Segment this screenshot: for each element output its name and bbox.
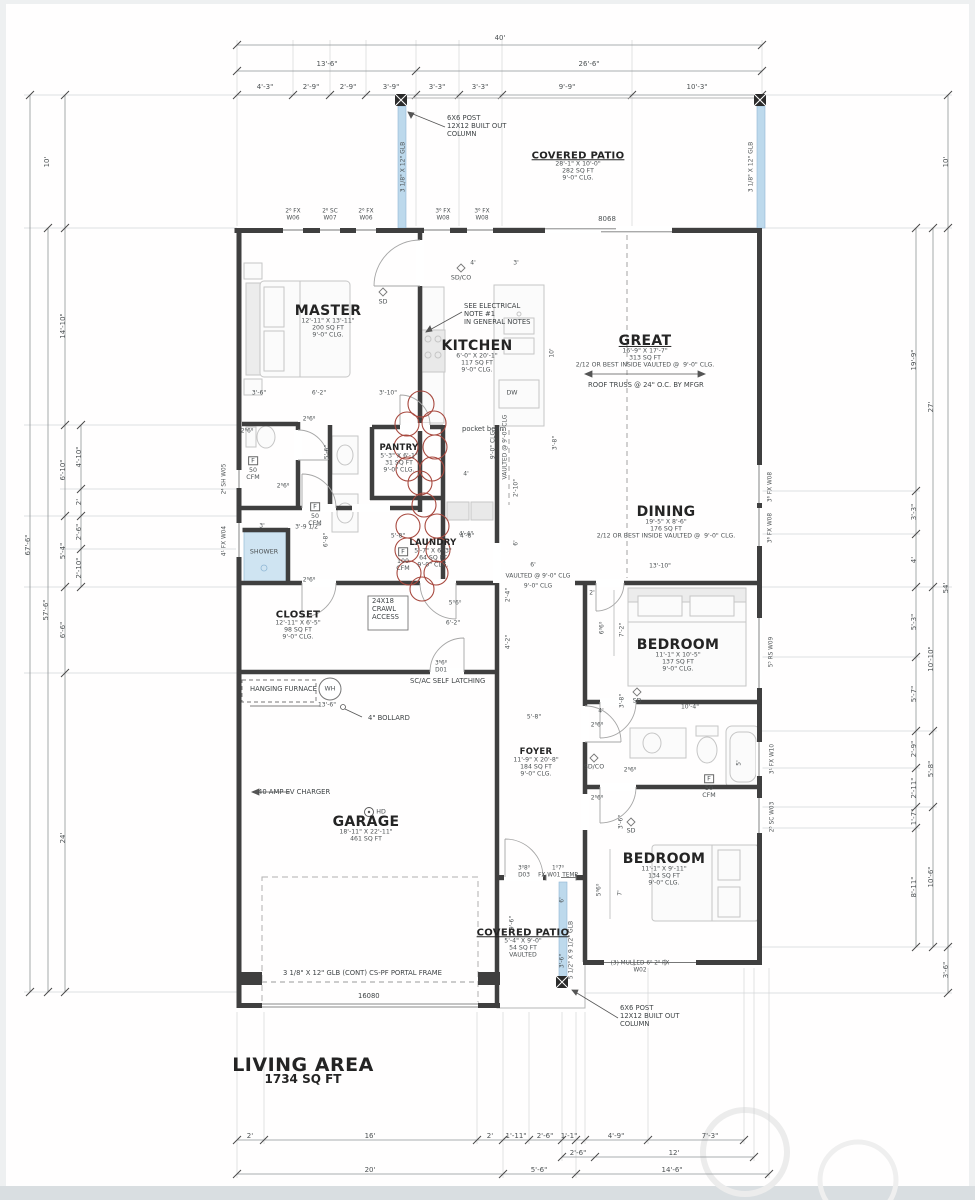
small-dims-27: VAULTED @ 9'-0" CLG: [506, 574, 571, 581]
dims-left-1: 57'-6": [42, 599, 50, 620]
markers-13: 100 CFM: [396, 558, 409, 572]
dims-top-11: 8068: [598, 215, 616, 223]
window-labels-v-2: 3⁶ FX W08: [768, 472, 775, 502]
dims-left-5: 5'-4": [59, 543, 67, 560]
small-dims-19: 2⁶6⁸: [303, 417, 315, 424]
room-sub-0-1: 200 SQ FT: [312, 325, 344, 332]
markers-10: F: [310, 502, 320, 511]
small-dims-26: 5⁰6⁰: [449, 601, 461, 608]
dims-top-7: 3'-3": [429, 83, 446, 91]
small-dims-4: 3': [513, 261, 518, 268]
small-dims-v-11: 2'-4": [506, 588, 513, 602]
room-sub-5-0: 5'-7" X 6'-3": [414, 547, 451, 554]
small-dims-v-3: 3'-8": [553, 436, 560, 450]
room-sub-6-0: 12'-11" X 6'-5": [275, 619, 320, 626]
window-labels-v-5: 3¹ FX W10: [770, 744, 777, 774]
room-sub-5-2: 9'-0" CLG.: [417, 562, 448, 569]
dims-left-2: 10': [43, 157, 51, 168]
room-sub-11-2: 9'-0" CLG.: [562, 175, 593, 182]
markers-1: SD/CO: [451, 274, 471, 281]
room-sub-9-1: 137 SQ FT: [662, 659, 694, 666]
dims-top-4: 2'-9": [303, 83, 320, 91]
dims-top-9: 9'-9": [559, 83, 576, 91]
note-4: HANGING FURNACE: [250, 686, 317, 694]
room-sub-4-1: 31 SQ FT: [385, 460, 413, 467]
dims-left-10: 2'-6": [75, 524, 83, 541]
room-sub-12-1: 54 SQ FT: [509, 945, 537, 952]
dims-right-4: 4': [910, 557, 918, 563]
dims-left-0: 67'-6": [24, 534, 32, 555]
room-sub-8-1: 184 SQ FT: [520, 764, 552, 771]
small-dims-v-21: 3 1/8" X 12" GLB: [749, 142, 756, 192]
small-dims-v-7: 6⁰6⁰: [600, 622, 607, 634]
room-sub-4-0: 5'-3" X 6'-1": [380, 452, 417, 459]
note-3: SC/AC SELF LATCHING: [410, 678, 485, 686]
room-sub-0-2: 9'-0" CLG.: [312, 332, 343, 339]
room-sub-9-0: 11'-1" X 10'-5": [655, 651, 700, 658]
note-1: SEE ELECTRICAL NOTE #1 IN GENERAL NOTES: [464, 303, 530, 326]
dims-right-14: 8'-11": [910, 876, 918, 897]
small-dims-v-0: 5'-6": [325, 445, 332, 459]
dims-right-13: 10'-6": [927, 866, 935, 887]
dims-bottom-2: 2': [487, 1132, 493, 1140]
room-sub-11-1: 282 SQ FT: [562, 168, 594, 175]
room-sub-6-1: 98 SQ FT: [284, 627, 312, 634]
dims-left-11: 2'-10": [75, 557, 83, 578]
window-labels-v-0: 2⁴ SH W05: [222, 464, 229, 495]
dims-bottom-6: 4'-9": [608, 1132, 625, 1140]
room-sub-5-1: 64 SQ FT: [419, 555, 447, 562]
small-dims-18: 13'-6": [318, 703, 336, 710]
room-sub-7-1: 461 SQ FT: [350, 836, 382, 843]
dims-top-8: 3'-3": [472, 83, 489, 91]
markers-9: 50 CFM: [246, 467, 259, 481]
small-dims-23: 2⁶6⁸: [591, 723, 603, 730]
room-sub-10-1: 134 SQ FT: [648, 873, 680, 880]
dims-top-2: 26'-6": [578, 60, 599, 68]
window-labels-8: (3) MULLED 6⁰ 2⁰ FX W02: [611, 960, 670, 973]
room-sub-2-2: 2/12 OR BEST INSIDE VAULTED @ 9'-0" CLG.: [576, 362, 715, 369]
markers-15: 50 CFM: [702, 785, 715, 799]
dims-left-4: 6'-10": [59, 459, 67, 480]
markers-14: F: [704, 774, 714, 783]
dims-top-6: 3'-9": [383, 83, 400, 91]
markers-7: WH: [325, 685, 336, 692]
dims-bottom-12: 14'-6": [661, 1166, 682, 1174]
small-dims-28: 9'-0" CLG: [524, 584, 552, 591]
dims-bottom-1: 16': [365, 1132, 376, 1140]
room-sub-1-2: 9'-0" CLG.: [461, 367, 492, 374]
small-dims-v-8: 3'-8": [620, 694, 627, 708]
window-labels-1: 2⁶ SC W07: [322, 208, 338, 221]
dims-right-6: 5'-3": [910, 614, 918, 631]
small-dims-v-4: 2'-10": [514, 479, 521, 497]
room-sub-0-0: 12'-11" X 13'-11": [301, 317, 354, 324]
room-sub-3-1: 176 SQ FT: [650, 526, 682, 533]
dims-top-0: 40': [495, 34, 506, 42]
dims-right-10: 5'-8": [927, 761, 935, 778]
room-sub-4-2: 9'-0" CLG.: [383, 467, 414, 474]
room-sub-3-0: 19'-5" X 8'-6": [645, 518, 686, 525]
small-dims-17: 5'-8": [527, 715, 541, 722]
window-labels-0: 2⁶ FX W06: [285, 208, 300, 221]
markers-4: SD: [627, 827, 636, 834]
window-labels-v-3: 3⁶ FX W08: [768, 513, 775, 543]
small-dims-v-10: 5': [737, 760, 744, 765]
dims-bottom-10: 20': [365, 1166, 376, 1174]
small-dims-v-14: 6': [560, 897, 567, 902]
small-dims-v-15: 3'-6": [560, 954, 567, 968]
small-dims-v-2: 10': [550, 348, 557, 357]
dims-bottom-8: 2'-6": [570, 1149, 587, 1157]
small-dims-25: 2⁶6⁸: [591, 796, 603, 803]
dims-right-8: 5'-7": [910, 686, 918, 703]
dims-top-5: 2'-9": [340, 83, 357, 91]
room-sub-11-0: 28'-1" X 10'-0": [555, 160, 600, 167]
small-dims-v-9: 3'-6": [619, 815, 626, 829]
dims-right-3: 3'-3": [910, 504, 918, 521]
dims-bottom-9: 12': [669, 1149, 680, 1157]
floor-plan-page: 40'13'-6"26'-6"4'-3"2'-9"2'-9"3'-9"3'-3"…: [0, 0, 975, 1200]
markers-16: SHOWER: [250, 548, 278, 555]
dims-top-1: 13'-6": [316, 60, 337, 68]
window-labels-3: 3⁶ FX W08: [435, 208, 450, 221]
small-dims-21: 2⁶6⁸: [277, 484, 289, 491]
room-sub-2-1: 313 SQ FT: [629, 355, 661, 362]
dims-right-12: 1'-7": [910, 809, 918, 826]
small-dims-14: 6'-2": [446, 621, 460, 628]
window-labels-4: 3⁶ FX W08: [474, 208, 489, 221]
room-sub-10-2: 9'-0" CLG.: [648, 880, 679, 887]
note-11: 6X6 POST 12X12 BUILT OUT COLUMN: [620, 1005, 679, 1028]
dims-right-5: 54': [942, 583, 950, 594]
room-sub-1-1: 117 SQ FT: [461, 360, 493, 367]
dims-left-7: 24': [59, 833, 67, 844]
small-dims-16: 4': [598, 709, 603, 716]
dims-bottom-11: 5'-6": [531, 1166, 548, 1174]
room-sub-2-0: 16'-9" X 17'-7": [622, 347, 667, 354]
markers-3: SD/CO: [584, 763, 604, 770]
small-dims-0: 3'-6": [252, 391, 266, 398]
dims-bottom-3: 1'-11": [505, 1132, 526, 1140]
dims-bottom-0: 2': [247, 1132, 253, 1140]
small-dims-v-19: 9'-0" CLG: [491, 431, 498, 459]
small-dims-7: 5'-8": [391, 534, 405, 541]
dims-top-3: 4'-3": [257, 83, 274, 91]
dims-right-2: 27': [927, 402, 935, 413]
note-8: pocket beam: [462, 426, 506, 434]
dims-right-0: 10': [942, 157, 950, 168]
note-2: 24X18 CRAWL ACCESS: [372, 598, 399, 621]
window-labels-2: 2⁶ FX W06: [358, 208, 373, 221]
room-sub-9-2: 9'-0" CLG.: [662, 666, 693, 673]
small-dims-v-5: 6': [514, 540, 521, 545]
window-labels-5: 3⁶6⁸ D01: [435, 660, 447, 673]
small-dims-11: 6': [530, 563, 535, 570]
room-sub-7-0: 18'-11" X 22'-11": [339, 828, 392, 835]
small-dims-v-22: 5 1/2" X 9 1/2" GLB: [569, 921, 576, 979]
window-labels-6: 3⁰8⁰ D03: [518, 865, 530, 878]
small-dims-5: 3': [259, 524, 264, 531]
room-sub-13-0: 1734 SQ FT: [265, 1073, 342, 1087]
note-9: 3 1/8" X 12" GLB (CONT) CS-PF PORTAL FRA…: [283, 970, 442, 978]
window-labels-v-4: 5⁵ RS W09: [769, 637, 776, 668]
small-dims-v-6: 7'-2": [620, 623, 627, 637]
dims-right-15: 3'-6": [942, 962, 950, 979]
dims-right-11: 2'-11": [910, 777, 918, 798]
note-10: 16080: [358, 993, 380, 1001]
markers-11: 50 CFM: [308, 513, 321, 527]
dims-left-9: 2': [75, 499, 83, 505]
room-sub-10-0: 11'-1" X 9'-11": [641, 865, 686, 872]
room-sub-12-2: VAULTED: [509, 952, 537, 959]
small-dims-12: 13'-10": [649, 564, 671, 571]
small-dims-2: 3'-10": [379, 391, 397, 398]
markers-8: F: [248, 456, 258, 465]
room-sub-1-0: 6'-0" X 20'-1": [456, 352, 497, 359]
small-dims-1: 6'-2": [312, 391, 326, 398]
small-dims-v-17: 7': [618, 890, 625, 895]
dims-bottom-4: 2'-6": [537, 1132, 554, 1140]
dims-left-3: 14'-10": [59, 313, 67, 338]
dims-right-9: 2'-9": [910, 741, 918, 758]
small-dims-v-16: 5⁰6⁰: [597, 884, 604, 896]
small-dims-10: 4'-4": [459, 532, 473, 539]
small-dims-15: 10'-4": [681, 705, 699, 712]
note-5: 4" BOLLARD: [368, 715, 410, 723]
markers-0: SD: [379, 298, 388, 305]
small-dims-22: 2⁶6⁸: [303, 578, 315, 585]
window-labels-v-1: 4¹ FX W04: [222, 526, 229, 556]
dims-top-10: 10'-3": [686, 83, 707, 91]
room-sub-8-2: 9'-0" CLG.: [520, 771, 551, 778]
small-dims-v-1: 6'-8": [324, 533, 331, 547]
small-dims-3: 4': [470, 261, 475, 268]
room-sub-8-0: 11'-9" X 20'-8": [513, 756, 558, 763]
window-labels-v-6: 2⁵ SC W03: [770, 802, 777, 833]
small-dims-24: 2⁶6⁸: [624, 768, 636, 775]
small-dims-20: 2⁶6⁸: [241, 429, 253, 436]
dims-left-8: 4'-10": [75, 446, 83, 467]
markers-6: DW: [506, 389, 517, 396]
dims-left-6: 6'-6": [59, 622, 67, 639]
room-sub-3-2: 2/12 OR BEST INSIDE VAULTED @ 9'-0" CLG.: [597, 533, 736, 540]
note-7: ROOF TRUSS @ 24" O.C. BY MFGR: [588, 382, 704, 390]
dims-right-1: 19'-9": [910, 349, 918, 370]
small-dims-v-20: 3 1/8" X 12" GLB: [401, 142, 408, 192]
dims-bottom-7: 7'-3": [702, 1132, 719, 1140]
small-dims-13: 2': [589, 591, 594, 598]
dims-bottom-5: 1'-1": [561, 1132, 578, 1140]
small-dims-v-12: 4'-2": [506, 635, 513, 649]
labels-layer: 40'13'-6"26'-6"4'-3"2'-9"2'-9"3'-9"3'-3"…: [0, 0, 975, 1200]
note-6: 40 AMP EV CHARGER: [258, 789, 330, 797]
window-labels-7: 1⁰7⁰ FX W01 TEMP: [538, 865, 578, 878]
markers-12: F: [398, 547, 408, 556]
room-sub-6-2: 9'-0" CLG.: [282, 634, 313, 641]
room-sub-12-0: 5'-4" X 9'-0": [504, 937, 541, 944]
note-0: 6X6 POST 12X12 BUILT OUT COLUMN: [447, 115, 506, 138]
dims-right-7: 10'-10": [927, 646, 935, 671]
markers-2: SD: [633, 697, 642, 704]
small-dims-9: 4': [463, 472, 468, 479]
